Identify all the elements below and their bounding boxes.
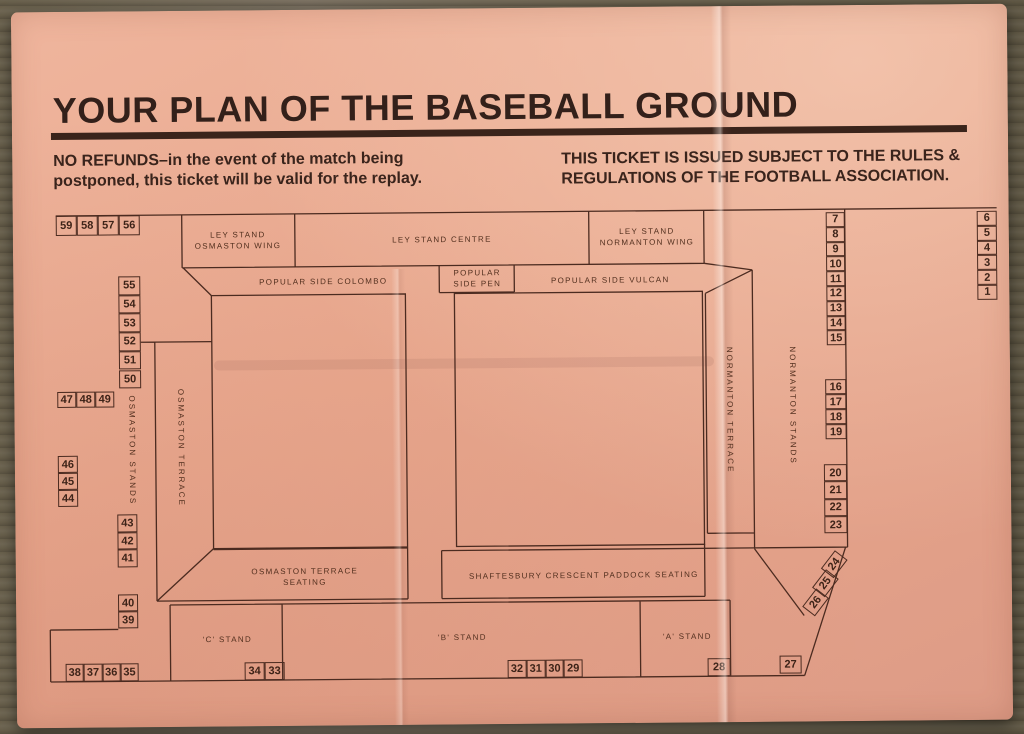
block-39: 39 <box>118 611 138 628</box>
block-3: 3 <box>977 255 997 270</box>
block-49: 49 <box>95 391 114 407</box>
block-7: 7 <box>826 212 845 227</box>
label-normanton-terrace: NORMANTON TERRACE <box>724 347 735 474</box>
label-c-stand: 'C' STAND <box>203 634 252 645</box>
label-osmaston-terrace-seating: OSMASTON TERRACE SEATING <box>251 565 358 588</box>
block-16: 16 <box>825 379 846 394</box>
block-21: 21 <box>824 481 847 498</box>
block-48: 48 <box>76 392 95 408</box>
block-40: 40 <box>118 594 138 611</box>
block-15: 15 <box>827 330 846 345</box>
block-58: 58 <box>77 216 98 236</box>
block-43: 43 <box>117 514 137 532</box>
block-17: 17 <box>825 394 846 409</box>
label-shaftesbury-crescent-paddock-seating: SHAFTESBURY CRESCENT PADDOCK SEATING <box>469 569 699 582</box>
block-38: 38 <box>66 664 84 682</box>
label-osmaston-stands: OSMASTON STANDS <box>126 395 137 505</box>
block-34: 34 <box>245 662 265 680</box>
block-30: 30 <box>545 660 564 678</box>
block-37: 37 <box>84 664 102 682</box>
block-29: 29 <box>564 659 583 677</box>
block-55: 55 <box>118 276 140 295</box>
block-5: 5 <box>977 226 997 241</box>
label-popular-side-vulcan: POPULAR SIDE VULCAN <box>551 274 670 286</box>
block-2: 2 <box>977 270 997 285</box>
block-14: 14 <box>827 316 846 331</box>
block-23: 23 <box>824 516 847 533</box>
block-36: 36 <box>102 663 120 681</box>
block-50: 50 <box>119 370 141 389</box>
block-9: 9 <box>826 242 845 257</box>
block-4: 4 <box>977 240 997 255</box>
plan-top-line <box>56 208 997 216</box>
block-28: 28 <box>708 658 731 676</box>
block-57: 57 <box>98 215 119 235</box>
block-13: 13 <box>826 301 845 316</box>
top-left-diagonal <box>183 268 211 296</box>
block-42: 42 <box>117 532 137 550</box>
block-46: 46 <box>58 456 78 473</box>
block-10: 10 <box>826 256 845 271</box>
label-popular-side-colombo: POPULAR SIDE COLOMBO <box>259 276 387 288</box>
block-54: 54 <box>118 295 140 314</box>
block-35: 35 <box>120 663 138 681</box>
block-56: 56 <box>119 215 140 235</box>
block-19: 19 <box>826 424 847 439</box>
stadium-plan-lines <box>11 4 1013 729</box>
label-b-stand: 'B' STAND <box>438 632 487 643</box>
label-ley-stand-normanton-wing: LEY STAND NORMANTON WING <box>600 225 695 248</box>
block-20: 20 <box>824 464 847 481</box>
ticket: YOUR PLAN OF THE BASEBALL GROUND NO REFU… <box>11 4 1013 729</box>
block-1: 1 <box>977 285 997 300</box>
label-a-stand: 'A' STAND <box>663 631 712 642</box>
block-12: 12 <box>826 286 845 301</box>
corner-diagonal-a <box>755 548 805 615</box>
block-27: 27 <box>780 655 802 673</box>
pitch-left-rect <box>211 294 408 601</box>
block-41: 41 <box>118 550 138 568</box>
label-ley-stand-osmaston-wing: LEY STAND OSMASTON WING <box>195 229 282 252</box>
block-8: 8 <box>826 227 845 242</box>
block-44: 44 <box>58 490 78 507</box>
block-45: 45 <box>58 473 78 490</box>
block-53: 53 <box>119 314 141 333</box>
label-popular-side-pen: POPULAR SIDE PEN <box>453 267 501 289</box>
block-22: 22 <box>824 499 847 516</box>
block-31: 31 <box>526 660 545 678</box>
block-51: 51 <box>119 351 141 370</box>
block-11: 11 <box>826 271 845 286</box>
block-59: 59 <box>56 216 77 236</box>
block-33: 33 <box>265 662 285 680</box>
block-6: 6 <box>977 211 997 226</box>
label-ley-stand-centre: LEY STAND CENTRE <box>392 234 492 246</box>
label-osmaston-terrace: OSMASTON TERRACE <box>175 389 186 507</box>
label-normanton-stands: NORMANTON STANDS <box>787 346 798 464</box>
block-52: 52 <box>119 332 141 351</box>
block-32: 32 <box>508 660 527 678</box>
block-47: 47 <box>57 392 76 408</box>
pitch-right-rect <box>454 291 704 546</box>
block-18: 18 <box>825 409 846 424</box>
top-right-diagonal <box>704 263 752 270</box>
